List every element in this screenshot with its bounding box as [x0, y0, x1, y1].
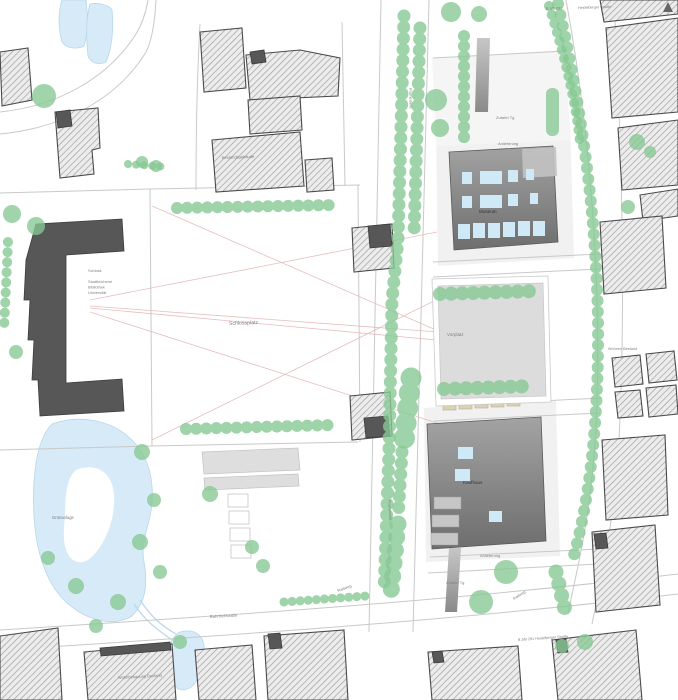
label-schlossplatz: Schlossplatz: [229, 320, 259, 327]
label-b291-nord: B 3/B 291: [546, 6, 562, 11]
label-bahnhofstrasse: Bahnhofstraße: [210, 613, 238, 619]
label-radweg-sued: Radweg: [337, 583, 353, 593]
kaufhaus-building: [427, 417, 546, 549]
label-schloss-2: Stadtbücherei: [88, 279, 112, 284]
label-wohnen-ost: Wohnen Bestand: [608, 347, 637, 351]
label-kaufhaus: Kaufhaus: [463, 480, 483, 485]
label-zufahrt-tg-sued: Zufahrt Tg: [446, 580, 464, 585]
label-anlieferung-sued: Anlieferung: [480, 553, 500, 558]
schloss-building: [24, 219, 124, 416]
label-anlieferung-nord: Anlieferung: [498, 141, 518, 146]
label-vorplatz: Vorplatz: [447, 332, 464, 337]
label-schloss-3: Bibliothek: [88, 285, 105, 290]
label-museum: Museum: [479, 209, 497, 214]
site-plan-map: Schlossplatz Museum Vorplatz Kaufhaus Sc…: [0, 0, 678, 700]
hedge: [546, 88, 559, 136]
label-schloss-4: Universität: [88, 290, 107, 295]
label-schloss-1: Schloss: [88, 268, 102, 273]
garage-ramp-north: [475, 38, 490, 112]
label-zufahrt-tg-nord: Zufahrt Tg: [496, 115, 514, 120]
museum-building: [449, 146, 558, 250]
label-promenade-nord: Promenade: [408, 88, 414, 110]
site-plan-canvas: Schlossplatz Museum Vorplatz Kaufhaus Sc…: [0, 0, 678, 700]
label-gruenanlage: Grünanlage: [52, 515, 75, 520]
